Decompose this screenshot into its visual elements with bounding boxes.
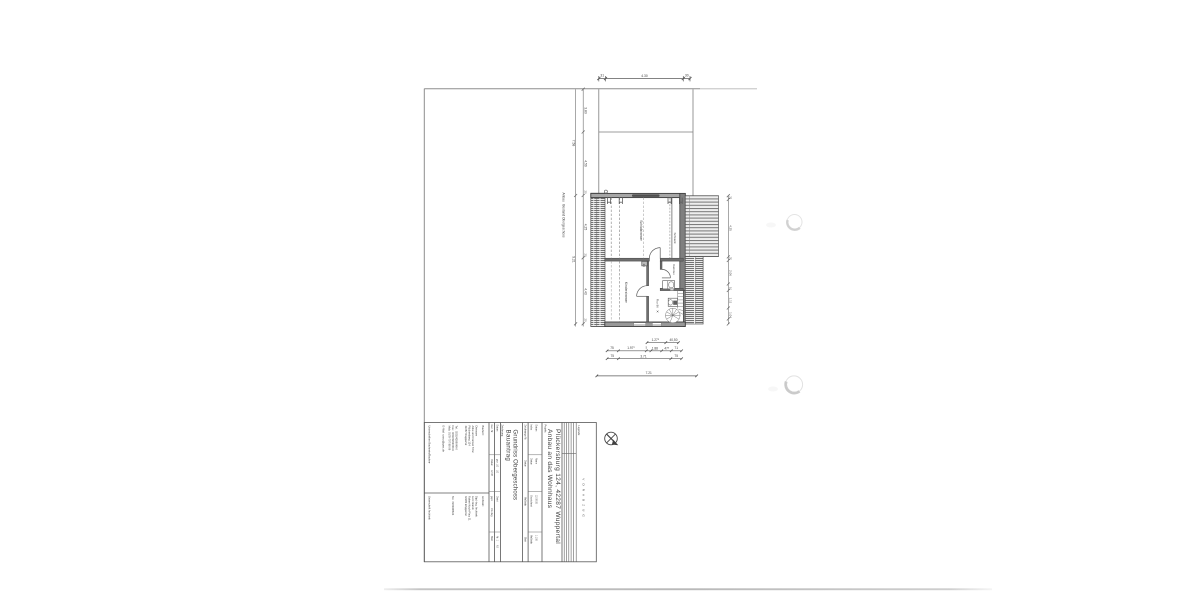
svg-text:Architekt:: Architekt: (481, 496, 485, 507)
svg-text:Fax: 0202/4299049-9: Fax: 0202/4299049-9 (451, 426, 455, 452)
svg-text:Unterschriften Bauherrin/Bauhe: Unterschriften Bauherrin/Bauherr (428, 426, 432, 464)
svg-text:Robert-Koch-Platz 11: Robert-Koch-Platz 11 (467, 496, 471, 521)
svg-text:Datei: Datei (495, 496, 498, 502)
svg-text:Anbau an das Wohnhaus: Anbau an das Wohnhaus (546, 429, 553, 509)
svg-text:Grundriss Obergeschoss: Grundriss Obergeschoss (512, 430, 518, 501)
svg-text:30: 30 (685, 74, 689, 78)
svg-text:VORABZUG: VORABZUG (581, 478, 585, 520)
svg-text:1.88: 1.88 (652, 347, 658, 351)
svg-text:Datum: Datum (535, 425, 538, 432)
svg-text:Nr. 1: Nr. 1 (495, 536, 498, 542)
svg-text:1:100: 1:100 (535, 535, 537, 541)
svg-text:3.80: 3.80 (583, 107, 587, 114)
svg-text:Dietmare: Dietmare (474, 426, 478, 437)
svg-text:1.04: 1.04 (728, 312, 732, 318)
svg-text:Maßstab: Maßstab (524, 497, 527, 507)
svg-text:Bauantrag: Bauantrag (505, 430, 512, 462)
svg-text:Anke und Carsten Tönz: Anke und Carsten Tönz (471, 426, 475, 454)
svg-text:4.30: 4.30 (641, 74, 648, 78)
svg-text:Zeichnungs-Nr.: Zeichnungs-Nr. (524, 425, 527, 441)
svg-text:Bauherr:: Bauherr: (481, 426, 485, 436)
svg-text:LG: LG (495, 470, 497, 473)
svg-text:Maßstab: Maßstab (530, 535, 533, 545)
svg-text:4.43: 4.43 (583, 288, 587, 295)
svg-text:Legende: Legende (577, 426, 580, 436)
svg-text:20: 20 (584, 319, 588, 322)
svg-text:71: 71 (674, 346, 678, 350)
svg-text:Zeichnung:: Zeichnung: (501, 425, 504, 438)
svg-text:75: 75 (610, 346, 614, 350)
svg-text:OG.dwg: OG.dwg (490, 508, 492, 517)
svg-text:7.58: 7.58 (572, 140, 576, 147)
svg-text:3.71: 3.71 (640, 354, 646, 358)
svg-text:Schlafzimmer: Schlafzimmer (639, 220, 643, 241)
svg-text:1.97⁵: 1.97⁵ (627, 346, 635, 350)
svg-text:12.08.05: 12.08.05 (535, 495, 537, 505)
svg-text:Datum: Datum (495, 425, 498, 432)
svg-text:40,50: 40,50 (670, 338, 678, 342)
svg-text:Index: Index (530, 425, 532, 431)
svg-text:Schrank: Schrank (673, 232, 677, 244)
svg-text:Name: Name (535, 458, 537, 465)
svg-text:Plückersberg 124: Plückersberg 124 (467, 426, 471, 447)
svg-text:Blatt: Blatt (524, 537, 527, 542)
svg-text:42283 Wuppertal: 42283 Wuppertal (464, 496, 468, 516)
svg-text:7.21: 7.21 (646, 371, 652, 375)
svg-text:Anbau Bestand Obergeschoss: Anbau Bestand Obergeschoss (561, 192, 565, 237)
svg-text:1.11: 1.11 (728, 298, 732, 304)
svg-text:Flur 86: Flur 86 (655, 299, 659, 308)
svg-text:gez. LG: gez. LG (495, 459, 497, 467)
svg-text:2.06: 2.06 (728, 270, 732, 276)
svg-text:Kammer: Kammer (672, 264, 676, 275)
svg-text:4.25: 4.25 (728, 225, 732, 231)
svg-text:Kinderzimmer: Kinderzimmer (624, 282, 628, 304)
svg-text:31: 31 (600, 74, 604, 78)
svg-text:20: 20 (584, 191, 588, 194)
svg-text:75: 75 (674, 354, 678, 358)
svg-text:Tel. 0202/4299048-0: Tel. 0202/4299048-0 (454, 426, 458, 451)
svg-text:9.21: 9.21 (572, 256, 576, 263)
svg-text:75: 75 (611, 354, 615, 358)
svg-text:12.08: 12.08 (490, 470, 492, 476)
svg-text:24: 24 (642, 264, 646, 268)
svg-text:Blatt: Blatt (490, 536, 493, 541)
svg-text:Plückersburg 124, 42287 Wupper: Plückersburg 124, 42287 Wuppertal (554, 429, 561, 544)
svg-text:42287 Wuppertal: 42287 Wuppertal (464, 426, 468, 446)
svg-text:Datum: Datum (490, 459, 493, 466)
svg-text:Datum: Datum (524, 460, 527, 467)
svg-text:A3: A3 (495, 545, 498, 549)
svg-text:Gez. Nr.: Gez. Nr. (490, 425, 493, 434)
svg-text:Unterschrift Architekt: Unterschrift Architekt (428, 496, 432, 520)
svg-text:5: 5 (646, 345, 648, 349)
svg-text:4.25: 4.25 (583, 224, 587, 231)
svg-text:47⁵: 47⁵ (664, 347, 670, 351)
svg-text:1.27⁵: 1.27⁵ (652, 338, 660, 342)
svg-text:gepr.: gepr. (490, 496, 493, 501)
svg-text:Dipl.-Ing. Architekt: Dipl.-Ing. Architekt (474, 496, 478, 517)
svg-text:Datum: Datum (530, 458, 533, 465)
svg-text:Lutz Glanck: Lutz Glanck (471, 496, 475, 510)
svg-text:4.59: 4.59 (583, 160, 587, 167)
svg-text:Mob. 0178-707 88 09: Mob. 0178-707 88 09 (447, 426, 451, 451)
svg-text:Gezeichnet: Gezeichnet (530, 495, 533, 507)
svg-text:E-Mail xxxxx@gmx.de: E-Mail xxxxx@gmx.de (441, 426, 445, 453)
svg-text:Tel. 0202/98633: Tel. 0202/98633 (451, 496, 455, 516)
